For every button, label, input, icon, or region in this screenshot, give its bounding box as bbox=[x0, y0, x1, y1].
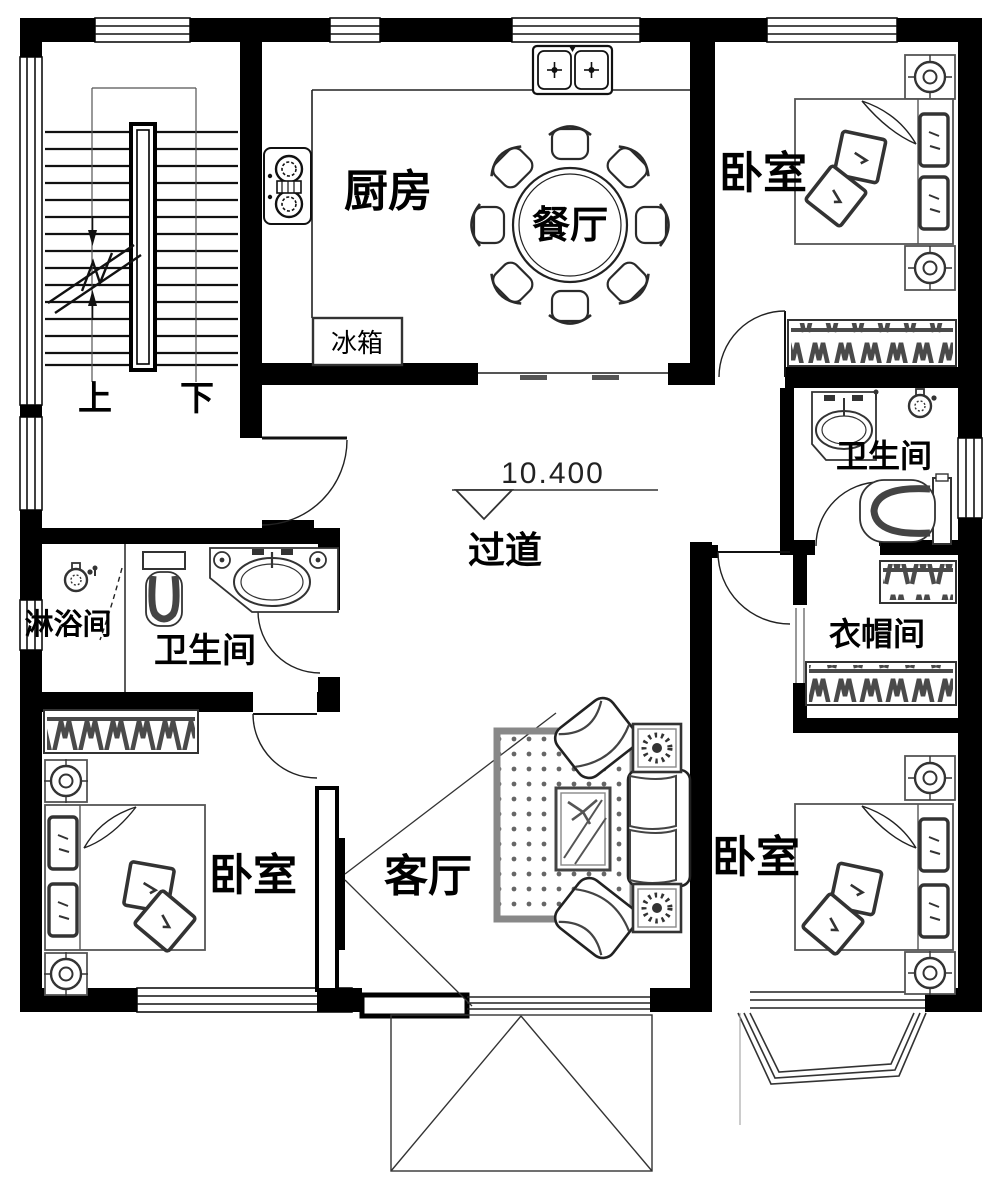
porch-roof bbox=[391, 1015, 652, 1171]
tv bbox=[337, 838, 345, 950]
corridor: 10.400 过道 bbox=[452, 457, 658, 571]
nightstand bbox=[905, 55, 955, 99]
stove bbox=[264, 148, 311, 224]
shower-head-icon bbox=[909, 389, 937, 417]
door-bedroom-bottom-left bbox=[253, 714, 317, 778]
bathroom-right-label: 卫生间 bbox=[836, 438, 932, 474]
dining-label: 餐厅 bbox=[532, 205, 608, 247]
sofa bbox=[628, 770, 690, 886]
wardrobe bbox=[788, 320, 956, 366]
fridge: 冰箱 bbox=[313, 318, 402, 365]
staircase: 上 下 bbox=[45, 88, 238, 418]
dining-area: 餐厅 bbox=[472, 127, 669, 324]
bay-window bbox=[738, 1013, 926, 1125]
side-table bbox=[633, 724, 681, 772]
bedroom-bottom-right: 卧室 bbox=[712, 756, 955, 995]
hook-icon bbox=[93, 566, 98, 577]
opening-kitchen-corridor bbox=[478, 373, 668, 380]
toilet bbox=[143, 552, 185, 626]
kitchen-label: 厨房 bbox=[344, 167, 432, 216]
door-bedroom-top-right bbox=[719, 311, 785, 377]
bathroom-right: 卫生间 bbox=[812, 389, 951, 544]
tv-wall bbox=[317, 788, 337, 990]
elevation-marker: 10.400 bbox=[452, 457, 658, 519]
stairs-up-label: 上 bbox=[78, 380, 112, 418]
bedroom-bottom-right-label: 卧室 bbox=[712, 832, 800, 882]
bathroom-left: 卫生间 bbox=[143, 548, 338, 670]
nightstand bbox=[44, 952, 88, 996]
cloakroom: 衣帽间 bbox=[806, 561, 956, 705]
wardrobe bbox=[880, 561, 956, 603]
nightstand bbox=[905, 756, 955, 800]
wardrobe bbox=[806, 662, 956, 705]
toilet bbox=[860, 474, 951, 544]
shower-head-icon bbox=[65, 563, 93, 591]
fridge-label: 冰箱 bbox=[331, 328, 383, 358]
floor-plan-drawing: 上 下 bbox=[0, 0, 1000, 1191]
kitchen-sink bbox=[533, 46, 612, 94]
nightstand bbox=[44, 759, 88, 803]
door-bathroom-left bbox=[258, 611, 320, 673]
cloakroom-label: 衣帽间 bbox=[829, 616, 925, 652]
bedroom-top-right-label: 卧室 bbox=[719, 148, 807, 198]
nightstand bbox=[905, 246, 955, 290]
wardrobe bbox=[44, 710, 198, 753]
shower-room-label: 淋浴间 bbox=[24, 608, 111, 641]
floor-plan: 上 下 bbox=[0, 0, 1000, 1191]
side-table bbox=[633, 884, 681, 932]
kitchen: 冰箱 厨房 bbox=[264, 46, 690, 365]
nightstand bbox=[905, 951, 955, 995]
corridor-label: 过道 bbox=[468, 530, 542, 571]
door-bedroom-bottom-right bbox=[718, 552, 790, 624]
bedroom-bottom-left: 卧室 bbox=[44, 710, 297, 996]
bathroom-left-label: 卫生间 bbox=[154, 632, 256, 670]
living-room-label: 客厅 bbox=[384, 852, 472, 901]
bedroom-bottom-left-label: 卧室 bbox=[209, 850, 297, 900]
bedroom-top-right: 卧室 bbox=[719, 55, 956, 366]
vanity-sink bbox=[210, 548, 338, 612]
entry-door bbox=[362, 995, 650, 1016]
stairs-down-label: 下 bbox=[180, 380, 214, 418]
door-stair-hall bbox=[262, 438, 347, 525]
elevation-value: 10.400 bbox=[501, 457, 605, 490]
coffee-table bbox=[556, 788, 610, 870]
living-room: 客厅 bbox=[337, 693, 690, 1006]
bay-window-opening bbox=[750, 992, 925, 1008]
opening-cloakroom bbox=[796, 608, 804, 683]
